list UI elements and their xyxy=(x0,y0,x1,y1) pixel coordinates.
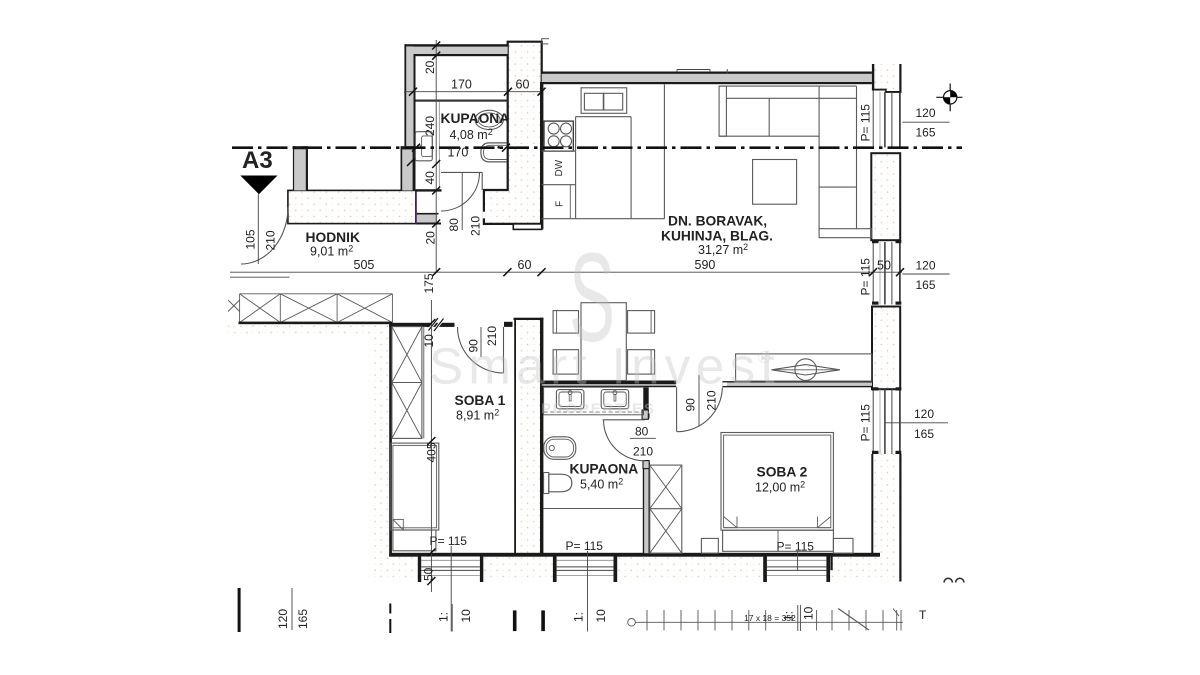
svg-text:210: 210 xyxy=(705,390,719,410)
svg-text:P= 115: P= 115 xyxy=(430,534,468,548)
svg-text:240: 240 xyxy=(423,116,437,136)
svg-text:10: 10 xyxy=(594,609,608,623)
svg-text:505: 505 xyxy=(354,258,375,272)
svg-text:165: 165 xyxy=(296,609,310,629)
svg-text:165: 165 xyxy=(916,126,936,140)
svg-text:KUPAONA: KUPAONA xyxy=(570,462,639,477)
svg-text:120: 120 xyxy=(914,407,934,421)
svg-text:90: 90 xyxy=(467,339,481,353)
svg-text:PROPERTIES: PROPERTIES xyxy=(541,401,656,418)
svg-text:12,00 m2: 12,00 m2 xyxy=(755,480,805,495)
svg-text:®: ® xyxy=(758,348,771,367)
svg-text:1:: 1: xyxy=(572,612,586,622)
svg-text:210: 210 xyxy=(633,445,653,459)
svg-text:175: 175 xyxy=(422,273,436,293)
svg-text:20: 20 xyxy=(424,231,438,245)
svg-text:590: 590 xyxy=(695,258,716,272)
svg-text:DW: DW xyxy=(554,159,565,176)
svg-text:105: 105 xyxy=(244,229,258,249)
svg-text:165: 165 xyxy=(916,278,936,292)
svg-text:120: 120 xyxy=(276,609,290,629)
svg-text:20: 20 xyxy=(423,60,437,74)
svg-text:120: 120 xyxy=(916,259,936,273)
svg-text:170: 170 xyxy=(448,146,469,160)
svg-text:P= 115: P= 115 xyxy=(777,540,815,554)
svg-text:120: 120 xyxy=(916,106,936,120)
svg-text:210: 210 xyxy=(264,230,278,250)
svg-text:31,27 m2: 31,27 m2 xyxy=(698,242,748,257)
svg-text:KUHINJA, BLAG.: KUHINJA, BLAG. xyxy=(661,229,773,244)
svg-text:17 x 18 = 352: 17 x 18 = 352 xyxy=(744,613,796,623)
svg-text:10: 10 xyxy=(422,334,436,348)
svg-text:DN. BORAVAK,: DN. BORAVAK, xyxy=(668,214,767,229)
svg-text:F: F xyxy=(555,201,566,207)
svg-text:210: 210 xyxy=(469,216,483,236)
svg-text:A3: A3 xyxy=(242,147,273,174)
svg-text:60: 60 xyxy=(516,78,530,92)
svg-text:10: 10 xyxy=(459,609,473,623)
svg-text:80: 80 xyxy=(635,425,649,439)
svg-text:80: 80 xyxy=(447,218,461,232)
svg-text:10: 10 xyxy=(802,606,816,620)
svg-text:T: T xyxy=(919,608,927,622)
svg-text:50: 50 xyxy=(877,259,891,273)
svg-text:170: 170 xyxy=(451,78,472,92)
svg-text:P= 115: P= 115 xyxy=(859,404,873,442)
svg-text:KUPAONA: KUPAONA xyxy=(441,111,510,126)
svg-text:P= 115: P= 115 xyxy=(566,539,604,553)
svg-text:SOBA 2: SOBA 2 xyxy=(757,465,808,480)
svg-text:1:: 1: xyxy=(437,612,451,622)
svg-text:Smart Invest: Smart Invest xyxy=(429,338,780,395)
svg-text:60: 60 xyxy=(518,258,532,272)
svg-text:4,08 m2: 4,08 m2 xyxy=(450,127,493,142)
svg-text:50: 50 xyxy=(422,567,436,581)
svg-text:40: 40 xyxy=(423,171,437,185)
svg-text:9,01 m2: 9,01 m2 xyxy=(310,244,353,259)
svg-text:8,91 m2: 8,91 m2 xyxy=(456,408,499,423)
svg-text:P= 115: P= 115 xyxy=(859,258,873,296)
svg-text:210: 210 xyxy=(485,326,499,346)
svg-text:5,40 m2: 5,40 m2 xyxy=(580,477,623,492)
svg-text:90: 90 xyxy=(684,398,698,412)
svg-text:165: 165 xyxy=(914,427,934,441)
svg-text:SOBA 1: SOBA 1 xyxy=(455,393,506,408)
svg-text:P= 115: P= 115 xyxy=(859,104,873,142)
svg-text:405: 405 xyxy=(425,442,439,462)
